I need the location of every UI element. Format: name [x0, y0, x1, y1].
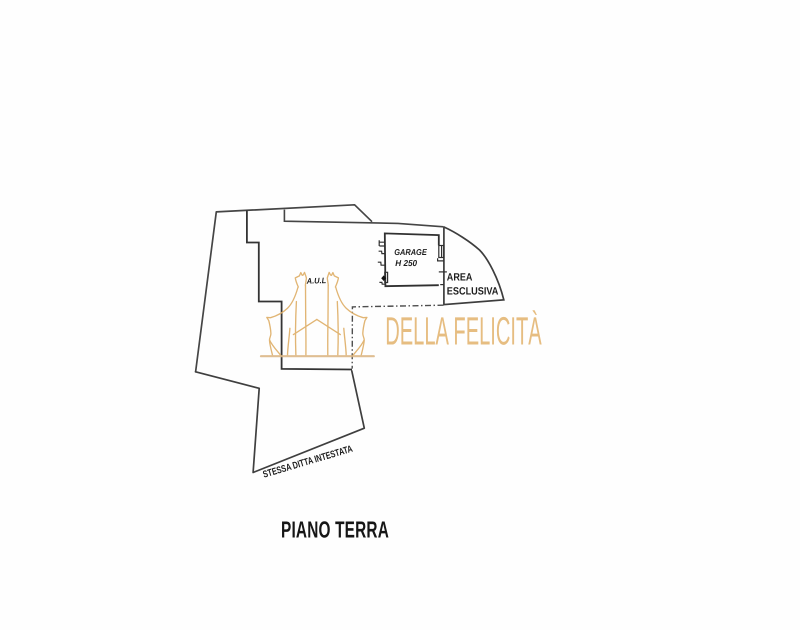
- svg-text:A.U.L: A.U.L: [306, 276, 327, 286]
- svg-text:H 250: H 250: [395, 258, 417, 268]
- svg-text:ESCLUSIVA: ESCLUSIVA: [447, 286, 499, 298]
- svg-text:AREA: AREA: [447, 272, 473, 284]
- svg-text:PIANO TERRA: PIANO TERRA: [281, 516, 389, 542]
- svg-text:STESSA DITTA INTESTATA: STESSA DITTA INTESTATA: [262, 444, 354, 481]
- svg-text:GARAGE: GARAGE: [394, 247, 427, 257]
- svg-text:DELLA FELICITÀ: DELLA FELICITÀ: [385, 309, 542, 353]
